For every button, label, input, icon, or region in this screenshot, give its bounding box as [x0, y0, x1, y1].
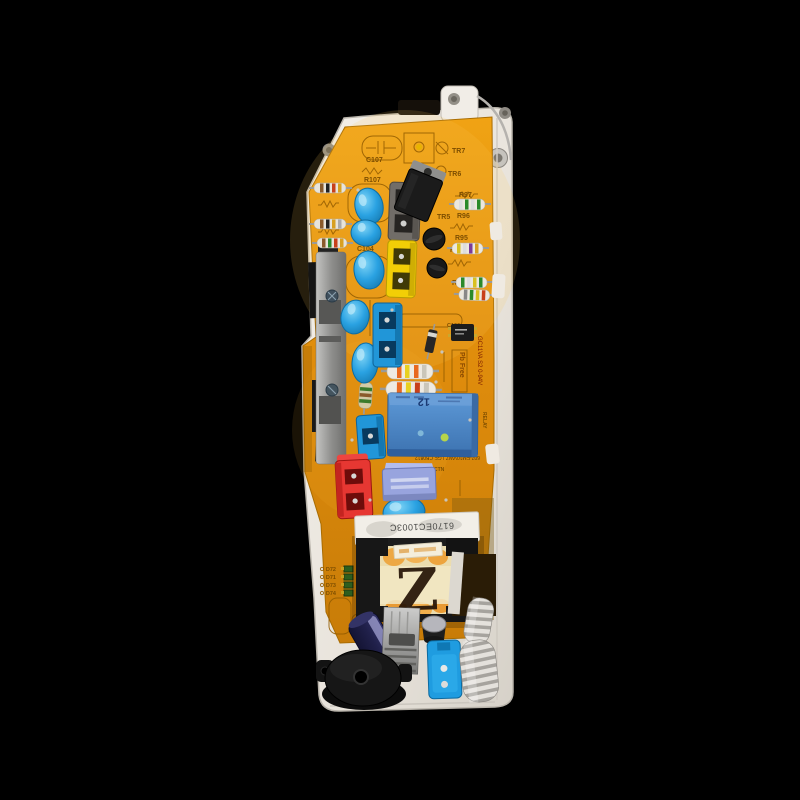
blue-connector-bottom [427, 640, 462, 699]
label-tr5: TR5 [437, 214, 450, 221]
blue-connector-a [373, 303, 402, 367]
label-board-marking: GC11VA S2 0-94V [476, 336, 482, 385]
relay-marking: 12 [418, 395, 430, 407]
smd-ic [448, 324, 477, 341]
label-tr7: TR7 [452, 148, 465, 155]
small-capacitor [422, 616, 446, 644]
photo-stage: C107 R107 TR7 TR6 TR5 R97 R96 R95 R94 R9… [0, 0, 800, 800]
label-d73: D73 [326, 583, 336, 589]
film-capacitor [382, 461, 436, 501]
label-d72: D72 [326, 567, 336, 573]
mounting-tab [441, 86, 478, 122]
relay-dot-green [441, 433, 449, 441]
label-r96: R96 [457, 213, 470, 220]
label-c107: C107 [366, 157, 383, 164]
label-r97: R97 [459, 192, 472, 199]
yellow-connector [386, 240, 417, 298]
label-tr6: TR6 [448, 171, 461, 178]
buzzer-hole [354, 670, 368, 684]
label-pb-free: Pb Free [458, 352, 465, 378]
label-r95: R95 [455, 235, 468, 242]
blue-connector-b [356, 414, 386, 460]
label-r107: R107 [364, 177, 381, 184]
relay: 12 [387, 393, 478, 457]
red-connector [335, 453, 373, 519]
label-d71: D71 [326, 575, 336, 581]
label-d74: D74 [326, 591, 337, 597]
solder-pad [416, 144, 422, 150]
pcb-photo: C107 R107 TR7 TR6 TR5 R97 R96 R95 R94 R9… [0, 0, 800, 800]
label-relay: RELAY [481, 412, 487, 429]
